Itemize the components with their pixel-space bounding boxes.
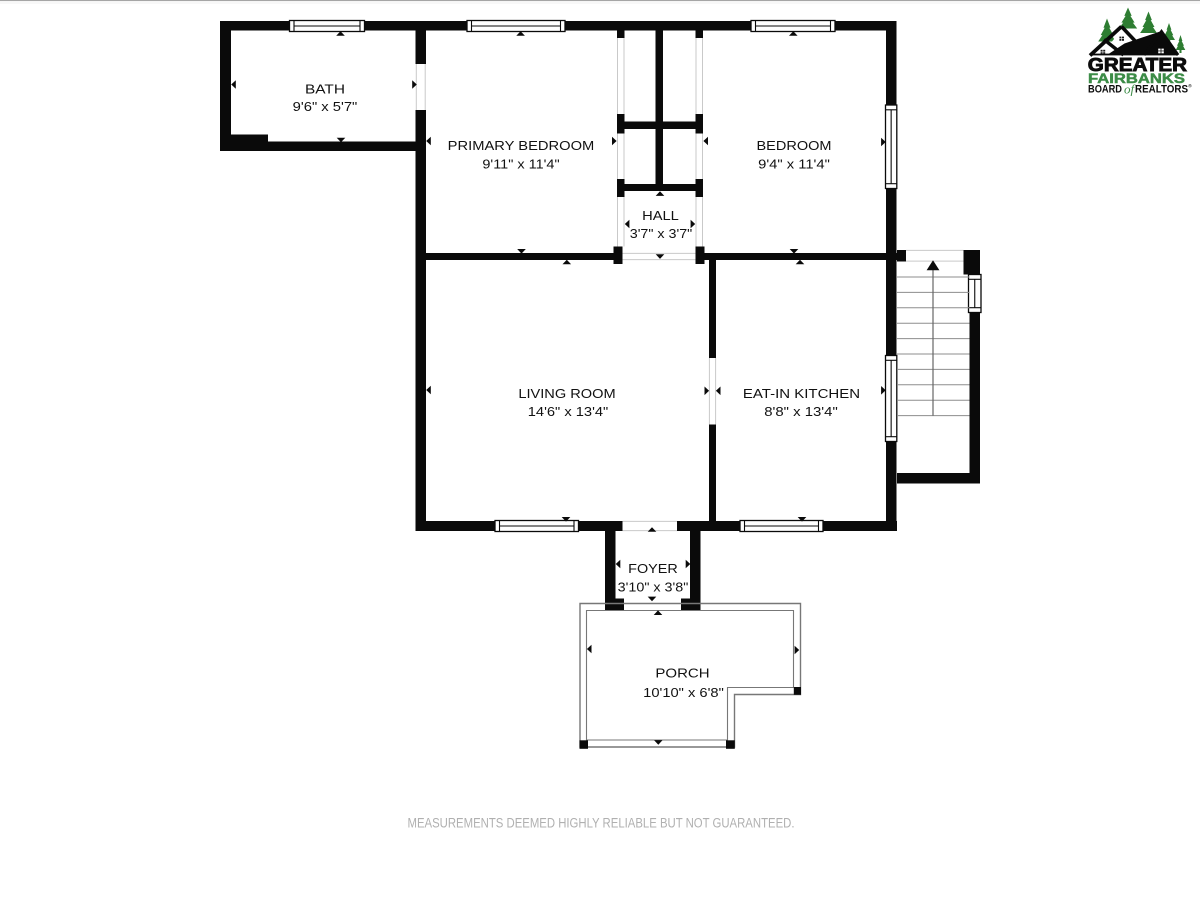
svg-text:BATH: BATH [305,81,345,96]
svg-text:MEASUREMENTS DEEMED HIGHLY REL: MEASUREMENTS DEEMED HIGHLY RELIABLE BUT … [408,816,795,831]
svg-text:9'4" x 11'4": 9'4" x 11'4" [758,156,830,171]
svg-text:9'6" x 5'7": 9'6" x 5'7" [293,99,358,114]
svg-text:EAT-IN KITCHEN: EAT-IN KITCHEN [743,386,860,401]
svg-text:FOYER: FOYER [628,561,678,576]
svg-text:BEDROOM: BEDROOM [757,138,832,153]
svg-text:LIVING ROOM: LIVING ROOM [518,386,615,401]
svg-text:REALTORS: REALTORS [1135,84,1188,96]
svg-text:14'6" x 13'4": 14'6" x 13'4" [528,404,609,419]
svg-text:PRIMARY BEDROOM: PRIMARY BEDROOM [448,138,595,153]
svg-text:BOARD: BOARD [1088,84,1122,96]
svg-text:3'7" x 3'7": 3'7" x 3'7" [630,226,693,241]
svg-text:8'8" x 13'4": 8'8" x 13'4" [764,404,838,419]
svg-text:HALL: HALL [642,208,679,223]
svg-text:PORCH: PORCH [655,666,709,681]
svg-text:9'11" x 11'4": 9'11" x 11'4" [482,156,560,171]
svg-text:10'10" x 6'8": 10'10" x 6'8" [643,685,724,700]
svg-text:3'10" x 3'8": 3'10" x 3'8" [618,579,689,594]
